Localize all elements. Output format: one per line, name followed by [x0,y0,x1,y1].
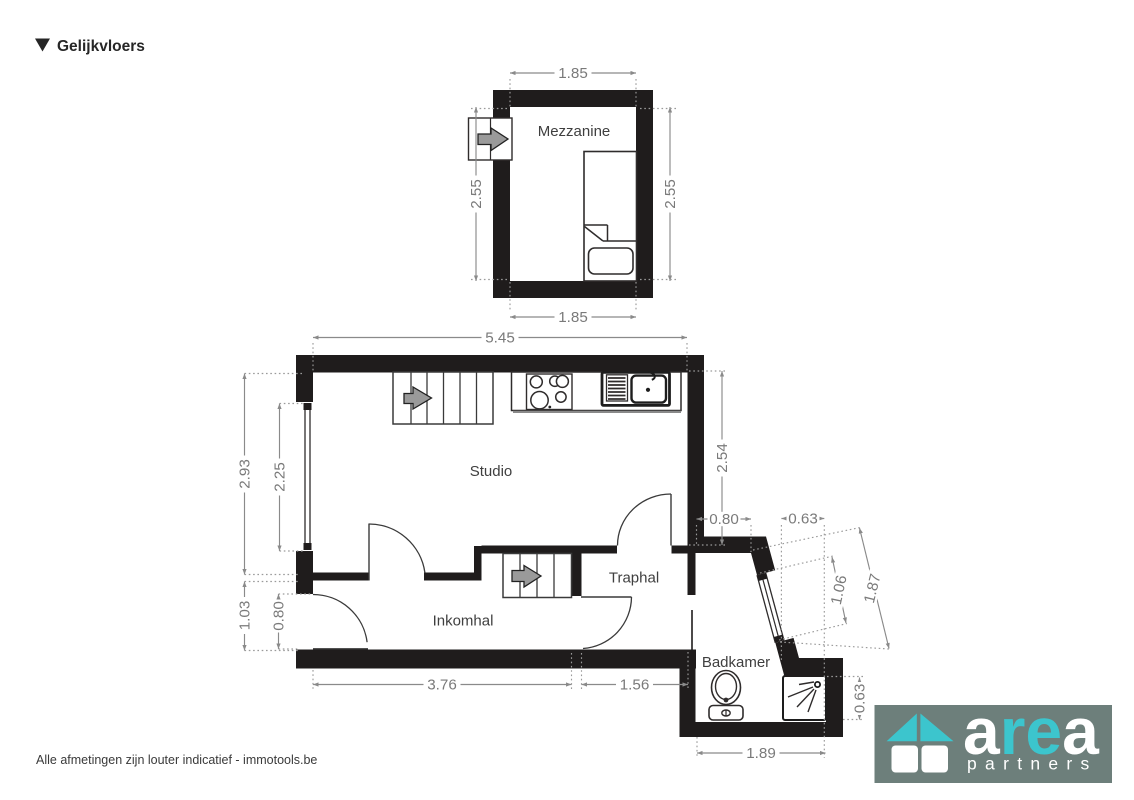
svg-text:0.63: 0.63 [851,684,868,714]
svg-text:1.89: 1.89 [746,745,776,762]
svg-text:Studio: Studio [470,463,513,480]
svg-text:1.03: 1.03 [236,601,253,631]
svg-text:1.56: 1.56 [620,676,650,693]
svg-text:Badkamer: Badkamer [702,654,770,671]
svg-text:0.80: 0.80 [709,511,739,528]
svg-text:1.85: 1.85 [558,309,588,326]
svg-text:Alle afmetingen zijn louter in: Alle afmetingen zijn louter indicatief -… [36,753,317,767]
svg-text:0.80: 0.80 [270,601,287,631]
svg-text:Inkomhal: Inkomhal [433,613,494,630]
svg-text:2.54: 2.54 [714,443,731,473]
svg-text:Traphal: Traphal [609,570,659,587]
svg-text:2.25: 2.25 [271,462,288,492]
svg-text:0.63: 0.63 [788,510,818,527]
svg-text:2.55: 2.55 [468,179,485,209]
svg-text:2.55: 2.55 [662,179,679,209]
svg-text:partners: partners [967,754,1098,774]
svg-text:Mezzanine: Mezzanine [538,123,611,140]
svg-text:1.85: 1.85 [558,65,588,82]
svg-text:3.76: 3.76 [427,676,457,693]
svg-text:Gelijkvloers: Gelijkvloers [57,38,145,55]
svg-text:2.93: 2.93 [236,459,253,489]
svg-text:5.45: 5.45 [485,329,515,346]
